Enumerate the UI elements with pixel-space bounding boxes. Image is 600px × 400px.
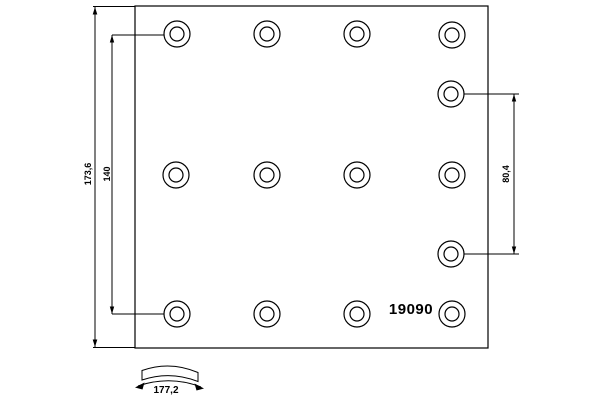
rivet-hole-outer	[344, 162, 370, 188]
rivet-hole-inner	[445, 28, 459, 42]
arc-width-label: 177,2	[145, 385, 187, 397]
dim-rivet-span-left	[110, 35, 164, 314]
rivet-hole-inner	[445, 307, 459, 321]
part-number: 19090	[386, 302, 436, 318]
rivet-hole-inner	[169, 168, 183, 182]
rivet-hole-inner	[444, 247, 458, 261]
rivet-hole-outer	[164, 21, 190, 47]
rivet-hole-outer	[254, 162, 280, 188]
rivet-hole-outer	[344, 21, 370, 47]
rivet-hole-outer	[164, 301, 190, 327]
drawing-canvas	[0, 0, 600, 400]
lining-plate-outline	[135, 6, 488, 348]
rivet-hole-outer	[344, 301, 370, 327]
arrowhead-right-icon	[195, 384, 205, 391]
rivet-hole-outer	[439, 301, 465, 327]
rivet-hole-outer	[163, 162, 189, 188]
curved-band-icon	[142, 366, 198, 382]
rivet-hole-inner	[170, 27, 184, 41]
brake-lining-technical-drawing: 173,6 140 80,4 19090 177,2	[0, 0, 600, 400]
rivet-hole-inner	[350, 168, 364, 182]
rivet-hole-inner	[170, 307, 184, 321]
arrow-up-icon	[93, 7, 98, 15]
rivet-hole-outer	[438, 81, 464, 107]
rivet-hole-inner	[260, 307, 274, 321]
rivet-hole-outer	[438, 241, 464, 267]
rivet-hole-outer	[254, 21, 280, 47]
arrow-up-icon	[512, 94, 516, 102]
rivet-hole-inner	[350, 27, 364, 41]
arrow-down-icon	[110, 307, 114, 315]
dim-overall-height	[93, 7, 135, 348]
rivet-hole-inner	[445, 168, 459, 182]
overall-height-label: 173,6	[82, 154, 94, 194]
arrow-down-icon	[512, 247, 516, 255]
rivet-hole-outer	[254, 301, 280, 327]
rivet-holes-group	[163, 21, 465, 327]
rivet-hole-outer	[439, 22, 465, 48]
rivet-hole-inner	[444, 87, 458, 101]
arrow-up-icon	[110, 35, 114, 43]
rivet-hole-inner	[260, 168, 274, 182]
rivet-hole-outer	[439, 162, 465, 188]
rivet-span-left-label: 140	[101, 159, 113, 189]
arrowhead-left-icon	[135, 383, 145, 390]
rivet-hole-inner	[260, 27, 274, 41]
rivet-hole-inner	[350, 307, 364, 321]
arrow-down-icon	[93, 340, 98, 348]
rivet-span-right-label: 80,4	[500, 157, 512, 191]
